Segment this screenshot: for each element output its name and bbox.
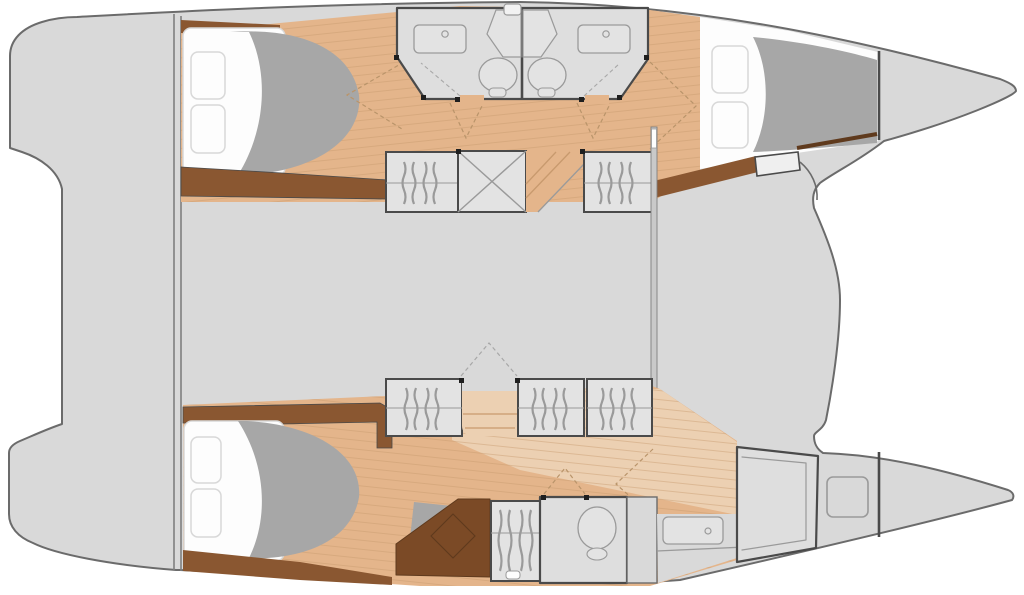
storage-row	[386, 378, 652, 436]
toilet-base	[489, 88, 506, 97]
hinge-dot	[644, 55, 649, 60]
hinge-dot	[584, 495, 589, 500]
pillow	[191, 489, 221, 537]
hinge-dot	[515, 378, 520, 383]
hinge-dot	[541, 495, 546, 500]
pillow	[191, 105, 225, 153]
shower-stall	[627, 497, 657, 583]
pillow	[191, 437, 221, 483]
hinge-dot	[455, 97, 460, 102]
deck-hatch	[504, 4, 521, 15]
hinge-dot	[579, 97, 584, 102]
wardrobe	[386, 152, 458, 212]
toilet-base	[538, 88, 555, 97]
hinge-dot	[617, 95, 622, 100]
mast-cap	[652, 129, 657, 148]
head-compartments	[394, 4, 649, 104]
wardrobe	[584, 152, 652, 212]
toilet-base	[587, 548, 607, 560]
pillow	[712, 46, 748, 93]
sink-counter	[578, 25, 630, 53]
locker-handle	[506, 571, 520, 579]
head-compartment	[540, 495, 657, 583]
storage-row	[386, 149, 652, 212]
floor-plan-canvas	[0, 0, 1024, 595]
hinge-dot	[456, 149, 461, 154]
hinge-dot	[580, 149, 585, 154]
door-opening	[585, 95, 609, 104]
vanity-sink	[663, 517, 723, 544]
pillow	[191, 52, 225, 99]
pillow	[712, 102, 748, 148]
hinge-dot	[459, 378, 464, 383]
sink-counter	[414, 25, 466, 53]
toilet	[479, 58, 517, 92]
toilet	[528, 58, 566, 92]
hinge-dot	[394, 55, 399, 60]
floor-plan-svg	[0, 0, 1024, 595]
hinge-dot	[421, 95, 426, 100]
toilet	[578, 507, 616, 549]
door-opening	[460, 95, 484, 104]
deck-hatch	[827, 477, 868, 517]
step-landing	[462, 380, 518, 391]
